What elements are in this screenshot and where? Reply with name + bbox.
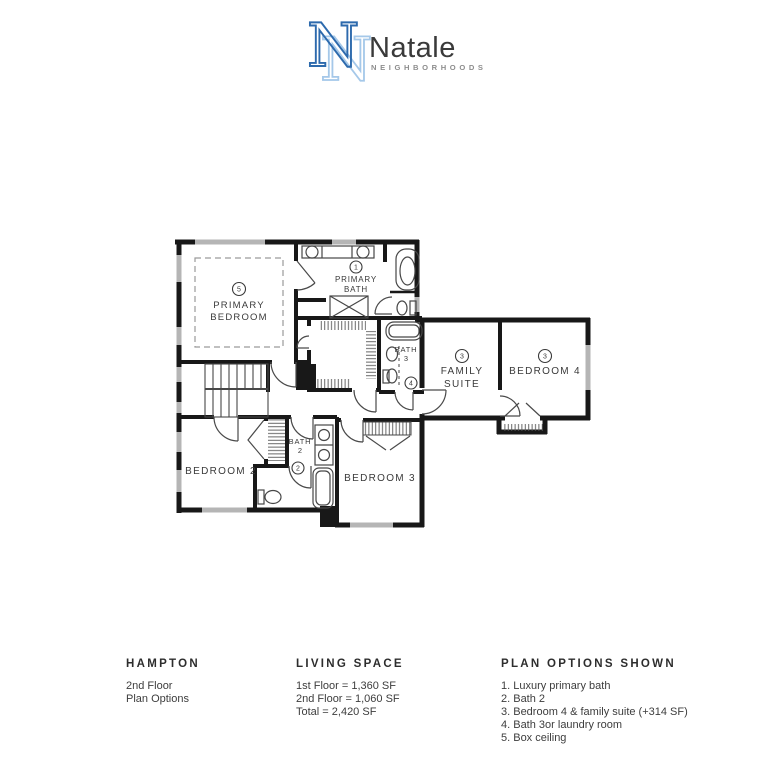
svg-text:2: 2 [298,446,302,455]
svg-text:PRIMARY: PRIMARY [213,300,265,311]
svg-text:BEDROOM 4: BEDROOM 4 [509,366,581,377]
room-label-primary-bath: 1 PRIMARY BATH [335,261,377,294]
sink-icon [306,246,318,258]
toilet-icon [397,301,407,315]
wall-step [320,506,337,527]
staircase [205,364,268,417]
svg-text:3: 3 [460,354,464,361]
svg-text:BATH: BATH [289,437,312,446]
plan-floor-line: 2nd Floor [126,680,200,693]
first-floor-sf: 1st Floor = 1,360 SF [296,680,404,693]
room-label-family-suite: 3 FAMILY SUITE [441,350,484,391]
sink-icon [319,450,330,461]
svg-text:BATH: BATH [344,285,368,294]
toilet-icon [265,491,281,504]
sink-icon [357,246,369,258]
living-space-title: LIVING SPACE [296,658,404,670]
room-label-bedroom2: BEDROOM 2 [185,466,257,477]
svg-text:BEDROOM: BEDROOM [210,312,268,323]
option-item: 3. Bedroom 4 & family suite (+314 SF) [501,706,688,719]
floor-plan-sheet: { "logo": { "monogram": "N", "brand": "N… [0,0,768,768]
option-item: 5. Box ceiling [501,732,688,745]
brand-name: Natale [369,32,456,64]
svg-text:4: 4 [409,381,413,388]
svg-text:PRIMARY: PRIMARY [335,275,377,284]
option-item: 2. Bath 2 [501,693,688,706]
option-item: 4. Bath 3or laundry room [501,719,688,732]
floor-plan: N N Natale NEIGHBORHOODS [0,0,768,768]
room-label-primary-bedroom: 5 PRIMARY BEDROOM [210,283,268,324]
living-space-block: LIVING SPACE 1st Floor = 1,360 SF 2nd Fl… [296,658,404,719]
option-item: 1. Luxury primary bath [501,680,688,693]
second-floor-sf: 2nd Floor = 1,060 SF [296,693,404,706]
room-label-bedroom4: 3 BEDROOM 4 [509,350,581,378]
plan-options-title: PLAN OPTIONS SHOWN [501,658,688,670]
room-label-bath2: BATH 2 2 [289,437,312,474]
svg-text:5: 5 [237,287,241,294]
svg-text:3: 3 [404,354,408,363]
plan-name-block: HAMPTON 2nd Floor Plan Options [126,658,200,706]
room-label-bedroom3: BEDROOM 3 [344,473,416,484]
total-sf: Total = 2,420 SF [296,706,404,719]
svg-text:SUITE: SUITE [444,379,480,390]
sink-icon [319,430,330,441]
brand-subtitle: NEIGHBORHOODS [371,63,487,72]
svg-text:2: 2 [296,466,300,473]
natale-logo: N N Natale NEIGHBORHOODS [307,11,487,95]
room-label-bath3: BATH 3 4 [395,345,418,389]
svg-text:FAMILY: FAMILY [441,366,484,377]
svg-text:3: 3 [543,354,547,361]
wall-block [296,364,316,390]
plan-options-block: PLAN OPTIONS SHOWN 1. Luxury primary bat… [501,658,688,745]
svg-text:1: 1 [354,265,358,272]
monogram-dark-n-icon: N [307,11,360,81]
plan-options-line: Plan Options [126,693,200,706]
plan-name-title: HAMPTON [126,658,200,670]
svg-text:BATH: BATH [395,345,418,354]
